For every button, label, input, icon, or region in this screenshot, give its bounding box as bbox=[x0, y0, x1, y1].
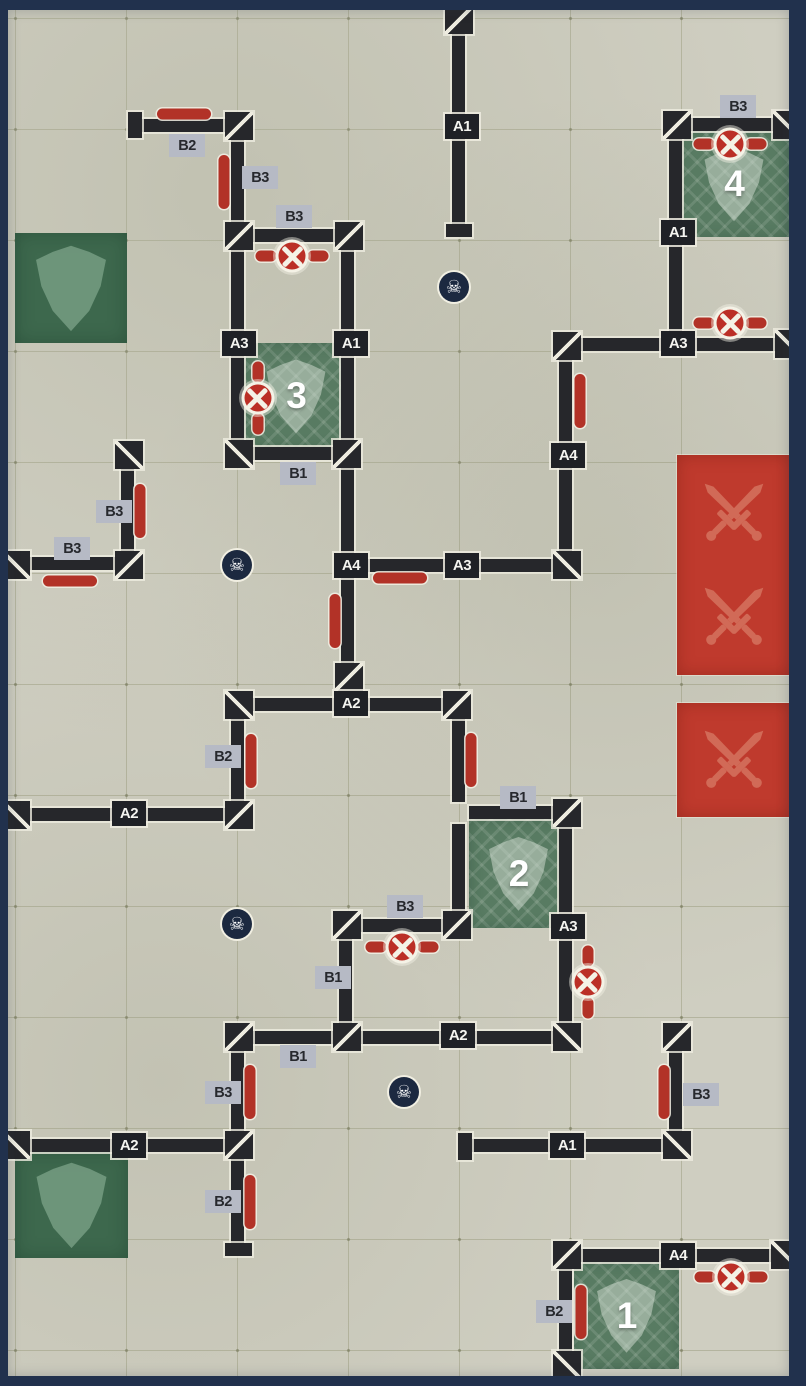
valve-pill bbox=[418, 942, 439, 953]
wall-label-chip: A1 bbox=[661, 220, 695, 245]
barricade-marker bbox=[330, 594, 341, 648]
objective-number: 4 bbox=[724, 163, 744, 205]
valve-pill bbox=[366, 942, 387, 953]
wall-junction bbox=[553, 551, 581, 579]
wall-junction bbox=[663, 111, 691, 139]
wall-segment bbox=[689, 118, 775, 131]
wall-junction bbox=[335, 222, 363, 250]
wall-label-chip: A4 bbox=[661, 1243, 695, 1268]
wall-side-label: B3 bbox=[276, 205, 312, 228]
valve-pill bbox=[253, 414, 264, 435]
barricade-marker bbox=[245, 1175, 256, 1229]
wall-side-label: B1 bbox=[280, 1045, 316, 1068]
hatch-valve bbox=[694, 131, 767, 158]
valve-pill bbox=[746, 139, 767, 150]
barricade-marker bbox=[576, 1285, 587, 1339]
wall-label-chip: A2 bbox=[334, 691, 368, 716]
valve-pill bbox=[694, 318, 715, 329]
wall-junction bbox=[115, 551, 143, 579]
shield-icon bbox=[34, 1161, 110, 1249]
shield-icon bbox=[33, 244, 109, 332]
wall-junction bbox=[553, 1351, 581, 1379]
wall-junction bbox=[553, 332, 581, 360]
wall-segment bbox=[452, 824, 465, 913]
barricade-marker bbox=[575, 374, 586, 428]
wall-label-chip: A1 bbox=[445, 114, 479, 139]
wall-junction bbox=[663, 1131, 691, 1159]
objective-zone: 2 bbox=[469, 819, 568, 928]
objective-number: 2 bbox=[509, 853, 529, 895]
valve-wheel-icon bbox=[245, 385, 272, 412]
wall-segment bbox=[359, 919, 445, 932]
valve-pill bbox=[694, 139, 715, 150]
barricade-marker bbox=[245, 1065, 256, 1119]
wall-segment bbox=[251, 447, 335, 460]
skull-token: ☠ bbox=[389, 1077, 419, 1107]
valve-pill bbox=[695, 1272, 716, 1283]
wall-side-label: B3 bbox=[387, 895, 423, 918]
wall-label-chip: A2 bbox=[112, 1133, 146, 1158]
barricade-marker bbox=[659, 1065, 670, 1119]
barricade-marker bbox=[466, 733, 477, 787]
wall-junction bbox=[553, 799, 581, 827]
valve-pill bbox=[256, 251, 277, 262]
wall-end-cap bbox=[225, 1243, 252, 1256]
wall-label-chip: A3 bbox=[222, 331, 256, 356]
wall-junction bbox=[333, 1023, 361, 1051]
wall-junction bbox=[225, 440, 253, 468]
engage-zone bbox=[677, 703, 790, 817]
wall-label-chip: A2 bbox=[441, 1023, 475, 1048]
wall-end-cap bbox=[458, 1133, 472, 1160]
wall-side-label: B1 bbox=[500, 786, 536, 809]
valve-pill bbox=[583, 998, 594, 1019]
wall-side-label: B3 bbox=[205, 1081, 241, 1104]
game-board-map: 4321A1A3A1A4A3A4A3A1A2A2A3A2A2A1A4B2B3B3… bbox=[0, 0, 806, 1386]
wall-label-chip: A3 bbox=[551, 914, 585, 939]
skull-token: ☠ bbox=[439, 272, 469, 302]
wall-junction bbox=[333, 440, 361, 468]
skull-token: ☠ bbox=[222, 550, 252, 580]
wall-junction bbox=[443, 691, 471, 719]
wall-side-label: B2 bbox=[536, 1300, 572, 1323]
wall-junction bbox=[225, 801, 253, 829]
valve-pill bbox=[747, 1272, 768, 1283]
wall-label-chip: A2 bbox=[112, 801, 146, 826]
wall-side-label: B3 bbox=[54, 537, 90, 560]
barricade-marker bbox=[157, 109, 211, 120]
wall-side-label: B1 bbox=[280, 462, 316, 485]
wall-segment bbox=[251, 229, 337, 242]
wall-junction bbox=[2, 1131, 30, 1159]
wall-junction bbox=[115, 441, 143, 469]
wall-junction bbox=[225, 1023, 253, 1051]
wall-segment bbox=[452, 717, 465, 802]
wall-label-chip: A1 bbox=[334, 331, 368, 356]
hatch-valve bbox=[695, 1264, 768, 1291]
wall-junction bbox=[225, 222, 253, 250]
wall-side-label: B2 bbox=[205, 1190, 241, 1213]
wall-junction bbox=[225, 691, 253, 719]
objective-number: 1 bbox=[617, 1295, 637, 1337]
wall-label-chip: A4 bbox=[551, 443, 585, 468]
valve-pill bbox=[308, 251, 329, 262]
valve-wheel-icon bbox=[717, 310, 744, 337]
wall-side-label: B2 bbox=[169, 134, 205, 157]
hatch-valve bbox=[256, 243, 329, 270]
wall-junction bbox=[225, 112, 253, 140]
wall-junction bbox=[773, 111, 801, 139]
wall-side-label: B3 bbox=[96, 500, 132, 523]
valve-wheel-icon bbox=[717, 131, 744, 158]
valve-wheel-icon bbox=[389, 934, 416, 961]
wall-side-label: B1 bbox=[315, 966, 351, 989]
wall-label-chip: A4 bbox=[334, 553, 368, 578]
wall-junction bbox=[553, 1241, 581, 1269]
wall-side-label: B3 bbox=[683, 1083, 719, 1106]
valve-wheel-icon bbox=[279, 243, 306, 270]
wall-junction bbox=[225, 1131, 253, 1159]
crossed-swords-icon bbox=[688, 571, 780, 663]
objective-number: 3 bbox=[286, 375, 306, 417]
defend-zone bbox=[15, 1152, 128, 1258]
wall-junction bbox=[335, 663, 363, 691]
hatch-valve bbox=[245, 362, 272, 435]
crossed-swords-icon bbox=[688, 714, 780, 806]
hatch-valve bbox=[366, 934, 439, 961]
barricade-marker bbox=[373, 573, 427, 584]
hatch-valve bbox=[694, 310, 767, 337]
wall-side-label: B3 bbox=[720, 95, 756, 118]
wall-junction bbox=[771, 1241, 799, 1269]
wall-junction bbox=[2, 801, 30, 829]
wall-label-chip: A1 bbox=[550, 1133, 584, 1158]
hatch-valve bbox=[575, 946, 602, 1019]
barricade-marker bbox=[43, 576, 97, 587]
wall-end-cap bbox=[446, 224, 472, 237]
wall-junction bbox=[553, 1023, 581, 1051]
barricade-marker bbox=[246, 734, 257, 788]
wall-junction bbox=[775, 330, 803, 358]
wall-junction bbox=[445, 6, 473, 34]
wall-segment bbox=[251, 1031, 335, 1044]
wall-junction bbox=[443, 911, 471, 939]
barricade-marker bbox=[135, 484, 146, 538]
wall-side-label: B2 bbox=[205, 745, 241, 768]
wall-side-label: B3 bbox=[242, 166, 278, 189]
barricade-marker bbox=[219, 155, 230, 209]
valve-pill bbox=[746, 318, 767, 329]
wall-label-chip: A3 bbox=[445, 553, 479, 578]
valve-wheel-icon bbox=[575, 969, 602, 996]
wall-junction bbox=[333, 911, 361, 939]
objective-zone: 1 bbox=[574, 1262, 679, 1369]
defend-zone bbox=[15, 233, 127, 343]
valve-pill bbox=[253, 362, 264, 383]
wall-junction bbox=[663, 1023, 691, 1051]
wall-junction bbox=[2, 551, 30, 579]
wall-label-chip: A3 bbox=[661, 331, 695, 356]
valve-pill bbox=[583, 946, 594, 967]
wall-segment bbox=[140, 119, 227, 132]
engage-zone bbox=[677, 455, 790, 675]
wall-segment bbox=[669, 1049, 682, 1133]
skull-token: ☠ bbox=[222, 909, 252, 939]
crossed-swords-icon bbox=[688, 467, 780, 559]
valve-wheel-icon bbox=[718, 1264, 745, 1291]
wall-end-cap bbox=[128, 112, 142, 138]
